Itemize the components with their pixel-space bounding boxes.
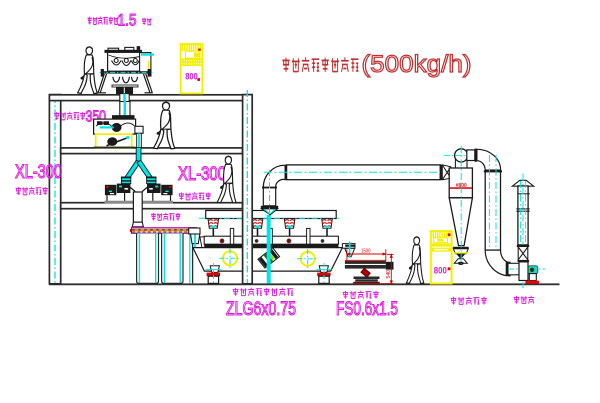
svg-text:800: 800 xyxy=(434,266,447,276)
svg-text:(500kg/h): (500kg/h) xyxy=(362,51,472,78)
svg-text:1.5: 1.5 xyxy=(118,12,137,30)
svg-text:FS0.6x1.5: FS0.6x1.5 xyxy=(336,299,398,320)
svg-text:540: 540 xyxy=(386,270,392,279)
svg-text:XL-300: XL-300 xyxy=(178,164,226,185)
svg-text:800: 800 xyxy=(185,72,198,82)
svg-text:XL-300: XL-300 xyxy=(15,162,62,183)
svg-text:1500: 1500 xyxy=(361,249,371,255)
svg-text:ZLG6x0.75: ZLG6x0.75 xyxy=(226,299,296,320)
